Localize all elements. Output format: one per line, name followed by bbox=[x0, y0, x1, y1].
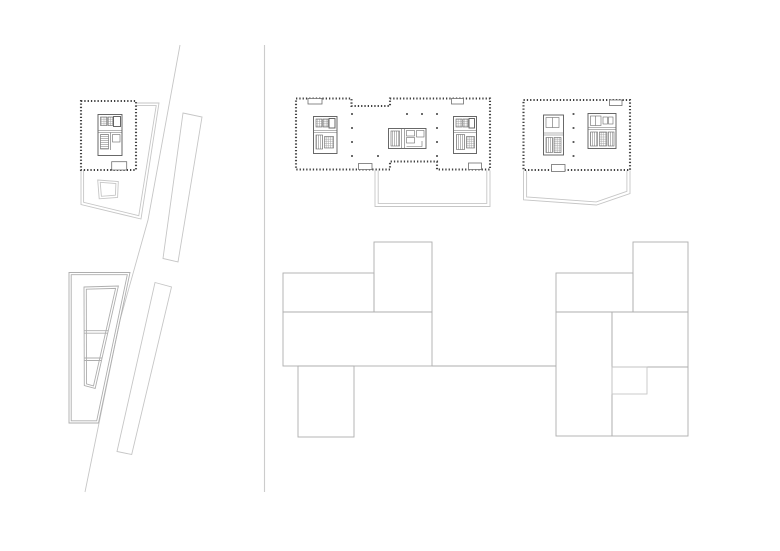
plan-a-terrace bbox=[375, 171, 490, 207]
site-roads bbox=[85, 45, 202, 492]
lower-building-trapezoid-inner bbox=[86, 288, 115, 386]
elevator-shaft bbox=[463, 119, 468, 127]
lower-building-outer bbox=[69, 273, 130, 424]
massing-block bbox=[556, 312, 612, 436]
stair bbox=[457, 135, 465, 150]
terrace-outer bbox=[375, 171, 490, 207]
massing-block bbox=[374, 242, 432, 312]
massing-block bbox=[612, 367, 688, 436]
entrance-tab bbox=[452, 99, 464, 105]
lower-building-inner bbox=[71, 275, 127, 421]
stair bbox=[546, 138, 553, 153]
shaft-room bbox=[469, 119, 475, 129]
elevator-shaft bbox=[101, 117, 108, 126]
elevator-shaft bbox=[323, 119, 328, 127]
stair bbox=[467, 137, 475, 149]
stair bbox=[554, 138, 561, 153]
massing-block bbox=[283, 312, 432, 366]
elevator-shaft bbox=[108, 117, 113, 126]
massing-block bbox=[283, 273, 374, 312]
entrance-tab bbox=[359, 164, 373, 170]
road-strip-lower bbox=[117, 283, 172, 455]
massing-diagram-a bbox=[283, 242, 556, 437]
elevator-shaft bbox=[316, 119, 322, 127]
shaft-room bbox=[114, 117, 121, 127]
elevator-shaft bbox=[456, 119, 462, 127]
terrace-outer bbox=[524, 171, 631, 206]
column-dot bbox=[436, 127, 438, 129]
entrance-tab bbox=[469, 163, 482, 170]
drawing-sheet bbox=[0, 0, 780, 551]
lower-building-trapezoid-outer bbox=[84, 286, 118, 388]
stair bbox=[101, 135, 109, 150]
column-dot bbox=[351, 127, 353, 129]
column-dot bbox=[406, 113, 408, 115]
massing-notch bbox=[612, 367, 647, 394]
entrance-tab bbox=[552, 165, 566, 172]
plan-b-floor-plan bbox=[524, 100, 631, 172]
column-dot bbox=[436, 155, 438, 157]
shaft-room bbox=[329, 119, 335, 129]
stair bbox=[591, 132, 598, 146]
column-dot bbox=[421, 113, 423, 115]
column-dot bbox=[377, 155, 379, 157]
entrance-tab bbox=[308, 99, 322, 105]
massing-diagram-b bbox=[556, 242, 688, 436]
road-line bbox=[85, 45, 180, 492]
court-quad-inner bbox=[100, 182, 116, 196]
column-dot bbox=[436, 141, 438, 143]
column-dot bbox=[351, 141, 353, 143]
plan-b-terrace bbox=[524, 171, 631, 206]
massing-block bbox=[633, 242, 688, 312]
road-strip-upper bbox=[163, 113, 202, 262]
massing-block bbox=[612, 312, 688, 367]
column-dot bbox=[573, 155, 575, 157]
plan-a-floor-plan bbox=[296, 99, 490, 170]
site-lower-building bbox=[69, 273, 130, 424]
stair bbox=[391, 131, 400, 146]
column-dot bbox=[351, 113, 353, 115]
column-dot bbox=[573, 127, 575, 129]
massing-block bbox=[298, 366, 354, 437]
terrace-inner bbox=[378, 171, 487, 204]
column-dot bbox=[351, 155, 353, 157]
column-dot bbox=[436, 113, 438, 115]
stair bbox=[325, 137, 334, 149]
stair bbox=[600, 132, 607, 146]
site-floor-plan bbox=[81, 101, 136, 170]
massing-block bbox=[556, 273, 633, 312]
stair bbox=[316, 135, 323, 149]
column-dot bbox=[573, 113, 575, 115]
entrance-tab bbox=[610, 100, 623, 106]
stair bbox=[608, 132, 614, 146]
terrace-inner bbox=[527, 171, 627, 202]
architectural-drawing-canvas bbox=[0, 0, 780, 551]
entrance-tab bbox=[112, 162, 127, 170]
column-dot bbox=[573, 141, 575, 143]
